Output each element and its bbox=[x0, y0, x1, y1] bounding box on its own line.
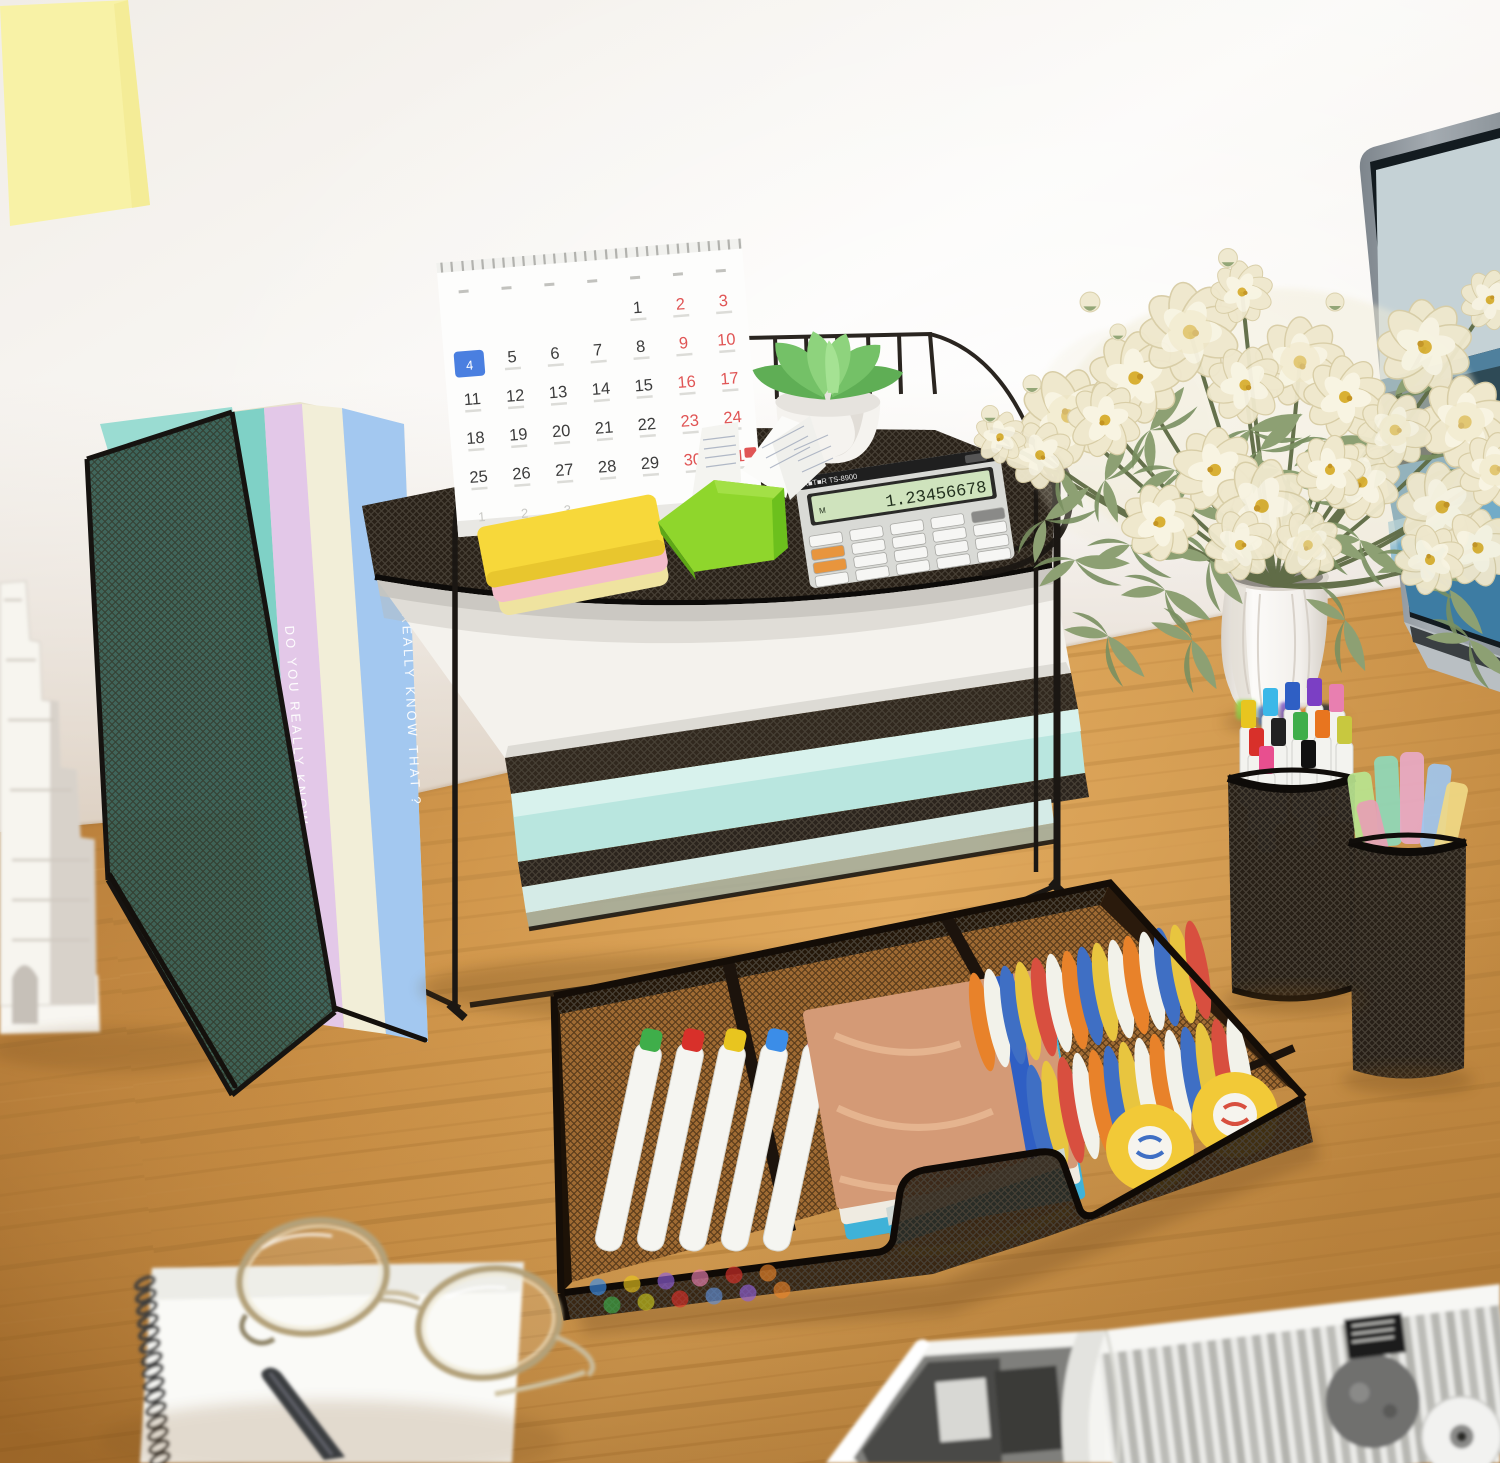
svg-text:17: 17 bbox=[720, 369, 740, 388]
svg-text:16: 16 bbox=[677, 373, 697, 392]
svg-text:29: 29 bbox=[640, 454, 660, 473]
svg-text:14: 14 bbox=[591, 380, 611, 399]
svg-text:6: 6 bbox=[550, 344, 561, 363]
svg-text:28: 28 bbox=[597, 457, 617, 476]
svg-text:10: 10 bbox=[717, 330, 737, 349]
svg-text:21: 21 bbox=[594, 418, 614, 437]
svg-text:13: 13 bbox=[548, 383, 568, 402]
svg-text:3: 3 bbox=[718, 292, 729, 311]
svg-text:1: 1 bbox=[478, 509, 486, 525]
svg-text:1: 1 bbox=[632, 299, 643, 318]
svg-text:15: 15 bbox=[634, 376, 654, 395]
svg-text:8: 8 bbox=[635, 338, 646, 357]
svg-text:7: 7 bbox=[593, 341, 604, 360]
svg-text:19: 19 bbox=[508, 425, 528, 444]
svg-text:20: 20 bbox=[551, 422, 571, 441]
svg-text:27: 27 bbox=[554, 461, 574, 480]
svg-text:26: 26 bbox=[512, 464, 532, 483]
svg-text:23: 23 bbox=[680, 412, 700, 431]
svg-text:9: 9 bbox=[678, 334, 689, 353]
svg-text:11: 11 bbox=[463, 390, 482, 409]
svg-text:25: 25 bbox=[469, 468, 489, 487]
svg-text:5: 5 bbox=[507, 348, 518, 367]
svg-text:22: 22 bbox=[637, 415, 657, 434]
svg-text:4: 4 bbox=[465, 357, 473, 373]
svg-text:2: 2 bbox=[675, 295, 686, 314]
svg-text:12: 12 bbox=[505, 386, 525, 405]
svg-text:18: 18 bbox=[466, 429, 486, 448]
